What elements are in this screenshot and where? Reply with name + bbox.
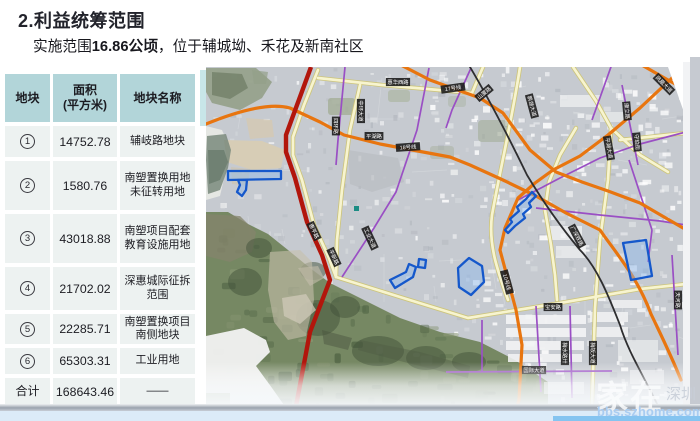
- svg-text:惠华西路: 惠华西路: [387, 78, 409, 86]
- svg-text:天河路: 天河路: [674, 292, 682, 309]
- svg-text:宝安路: 宝安路: [545, 303, 562, 311]
- svg-text:四环路: 四环路: [332, 118, 340, 135]
- svg-text:梅水路廾: 梅水路廾: [561, 342, 569, 364]
- svg-text:梅坂大道: 梅坂大道: [589, 342, 597, 364]
- svg-text:平湖路: 平湖路: [366, 132, 383, 140]
- svg-text:中环大道: 中环大道: [357, 100, 365, 122]
